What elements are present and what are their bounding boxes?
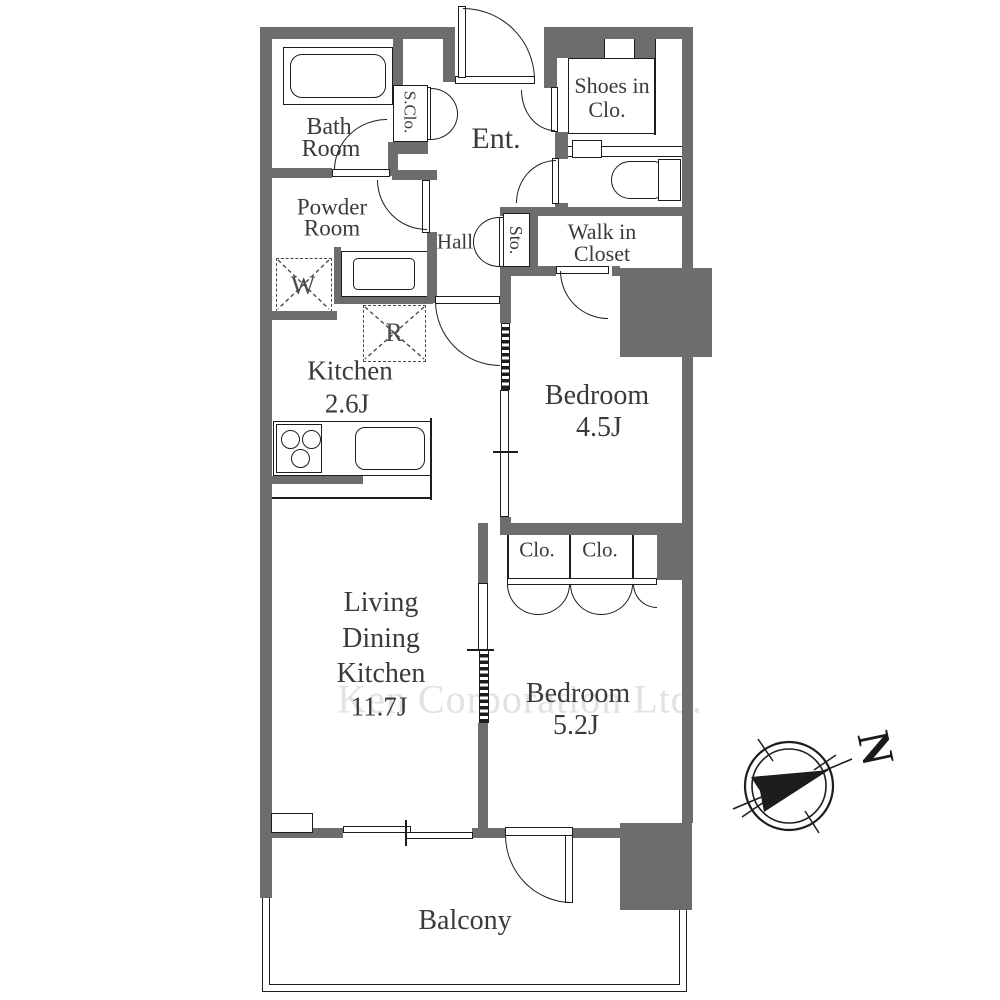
room-label-sclo: S.Clo. (402, 91, 419, 134)
compass-north-label: N (847, 726, 906, 770)
closet-divider (632, 535, 634, 584)
wall-segment (682, 357, 693, 823)
room-size-bedroom1: 4.5J (576, 414, 622, 442)
closet-door-arc (633, 584, 657, 608)
wall-segment (262, 27, 443, 39)
room-label-closet: Clo. (582, 540, 618, 561)
sliding-door-leaf (500, 390, 509, 517)
counter-edge-line (430, 418, 432, 500)
room-label-walk-in-closet: Closet (574, 243, 630, 265)
compass-needle (751, 770, 829, 812)
wall-segment (573, 828, 620, 838)
closet-door-arc (570, 584, 601, 615)
room-label-shoes-closet: Shoes in (574, 75, 649, 97)
room-label-bedroom1: Bedroom (545, 382, 649, 410)
storage-door-arc (473, 242, 499, 267)
window-tick (405, 820, 407, 846)
storage-door-arc (473, 217, 499, 242)
wall-segment (393, 38, 403, 85)
wall-segment (472, 828, 505, 838)
stove-burner (291, 449, 310, 468)
sliding-door-track (501, 323, 510, 390)
closet-door-arc (601, 584, 633, 615)
room-label-hall: Hall (437, 232, 473, 253)
toilet-tank (658, 159, 681, 201)
sliding-door-leaf (478, 583, 488, 650)
compass-ticks (742, 739, 836, 833)
room-size-ldk: 11.7J (351, 694, 408, 721)
wall-segment (427, 232, 437, 303)
wall-segment (272, 311, 337, 320)
compass-icon (733, 739, 852, 833)
room-size-bedroom2: 5.2J (553, 712, 599, 740)
floor-plan: Ken Corporation Ltd. (0, 0, 1000, 1000)
wall-segment (443, 27, 455, 82)
wall-segment (500, 266, 556, 276)
bath-door-threshold (332, 169, 390, 177)
concrete-pillar (620, 823, 692, 910)
wall-segment (557, 38, 604, 58)
window-panel (343, 826, 411, 833)
wall-segment (334, 297, 433, 304)
wall-segment (612, 266, 620, 276)
wall-segment (478, 523, 488, 583)
wall-segment (544, 27, 557, 88)
bathtub-inner (290, 54, 386, 98)
balcony-door-arc (505, 835, 572, 903)
washbasin-bowl (353, 258, 415, 290)
toilet-door-arc (516, 160, 556, 203)
wall-segment (682, 27, 693, 268)
toilet-bowl (611, 161, 662, 199)
sliding-door-tick (467, 649, 494, 651)
ldk-door-arc (435, 301, 500, 366)
sclo-door-arc (431, 114, 458, 140)
wall-segment (272, 476, 363, 484)
room-label-kitchen: Kitchen (307, 358, 392, 385)
shoes-door-arc (521, 90, 555, 131)
wall-notch (271, 813, 313, 833)
room-label-powder: Room (304, 217, 360, 240)
room-label-ldk: Dining (342, 625, 420, 653)
kitchen-sink (355, 427, 425, 470)
wall-segment (260, 27, 272, 898)
toilet-paper-holder (572, 140, 602, 158)
wall-segment (392, 170, 437, 180)
room-label-balcony: Balcony (418, 907, 511, 935)
room-size-kitchen: 2.6J (325, 391, 369, 418)
entrance-door-arc (463, 8, 535, 80)
wall-segment (272, 168, 332, 178)
closet-divider (507, 535, 509, 584)
sliding-door-tick (493, 451, 518, 453)
room-label-walk-in-closet: Walk in (568, 221, 637, 243)
closet-door-arc (538, 584, 570, 615)
room-label-ldk: Living (344, 589, 419, 617)
wall-segment (657, 523, 693, 580)
room-label-bath: Room (302, 137, 361, 161)
sclo-door-arc (431, 88, 458, 114)
room-label-bedroom2: Bedroom (526, 680, 630, 708)
concrete-pillar (620, 268, 712, 357)
counter-edge-line (272, 497, 432, 499)
compass-needle-line (733, 759, 852, 809)
sliding-door-track (479, 650, 489, 723)
room-label-entrance: Ent. (471, 124, 520, 154)
room-label-closet: Clo. (519, 540, 555, 561)
closet-divider (569, 535, 571, 584)
wic-door-arc (560, 271, 608, 319)
room-label-shoes-closet: Clo. (588, 99, 625, 121)
wall-segment (635, 38, 655, 58)
powder-door-arc (377, 180, 427, 230)
wall-segment (393, 142, 428, 154)
stove-burner (281, 430, 300, 449)
window-panel (405, 832, 473, 839)
wall-segment (500, 276, 511, 323)
wall-segment (530, 216, 538, 267)
stove-burner (302, 430, 321, 449)
refrigerator-label: R (385, 320, 402, 346)
room-label-ldk: Kitchen (337, 660, 426, 688)
wall-segment (478, 723, 488, 838)
washer-label: W (291, 273, 316, 299)
wall-segment (555, 132, 568, 159)
closet-door-arc (507, 584, 538, 615)
wall-segment (334, 247, 341, 297)
room-label-storage: Sto. (507, 226, 525, 255)
